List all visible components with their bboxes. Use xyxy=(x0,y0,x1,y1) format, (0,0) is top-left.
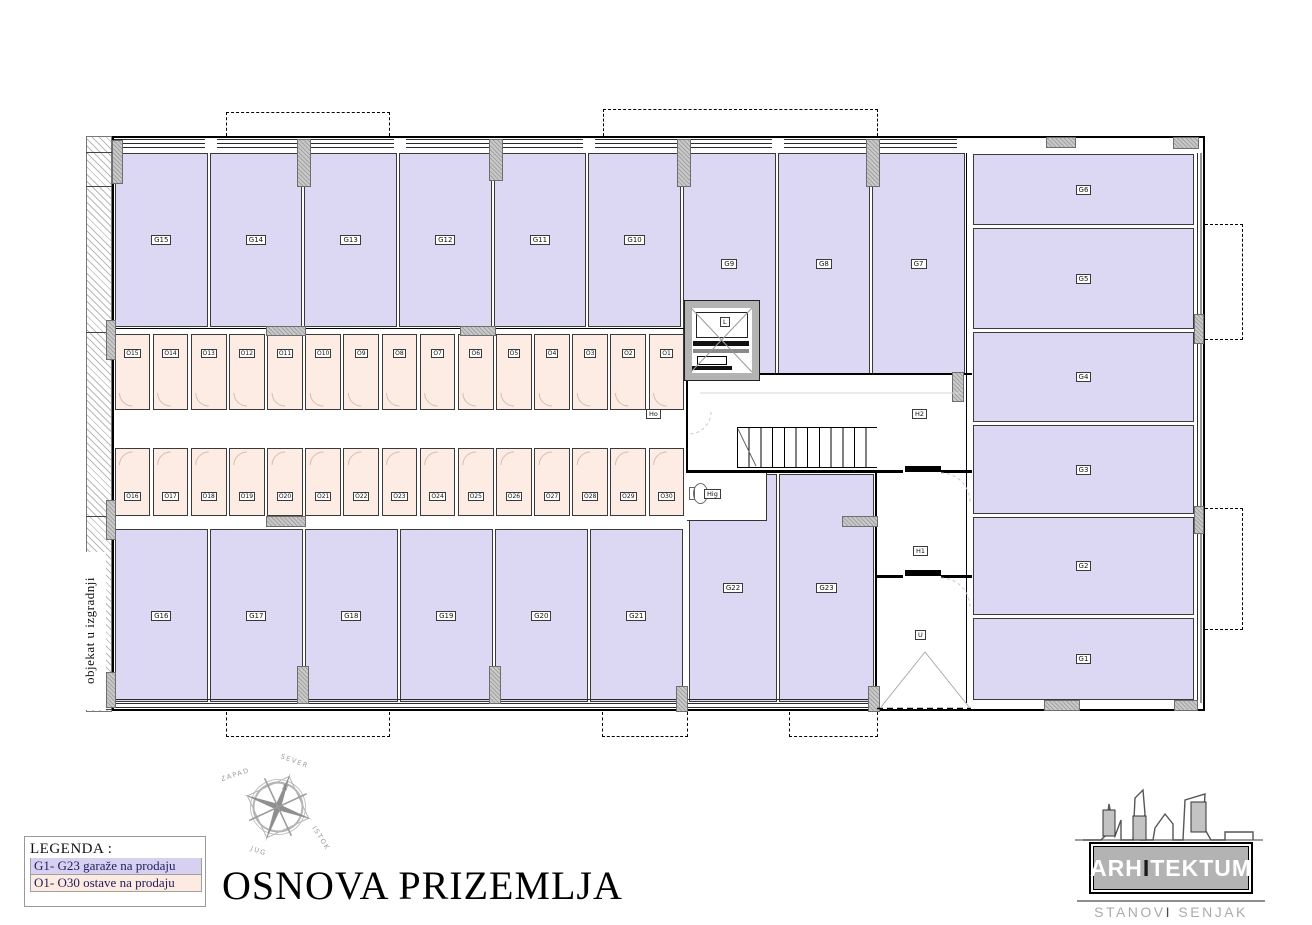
column xyxy=(489,139,503,181)
compass-rose-icon: N SEVER JUG ISTOK ZAPAD xyxy=(222,748,334,860)
column xyxy=(952,372,964,402)
room-G8: G8 xyxy=(778,153,871,374)
side-note: objekat u izgradnji xyxy=(82,552,106,710)
room-O1: O1 xyxy=(649,334,685,410)
wall xyxy=(114,328,686,329)
column xyxy=(460,326,496,336)
room-O19: O19 xyxy=(229,448,265,516)
room-label: G12 xyxy=(435,235,455,245)
legend-item-garages: G1- G23 garaže na prodaju xyxy=(30,858,202,875)
room-O15: O15 xyxy=(115,334,151,410)
compass-west-label: ZAPAD xyxy=(222,766,251,783)
room-label: G8 xyxy=(816,259,832,269)
pilaster-gap xyxy=(583,139,595,151)
room-O18: O18 xyxy=(191,448,227,516)
garage-doors-right xyxy=(1197,153,1204,703)
room-label: G23 xyxy=(816,583,836,593)
room-O20: O20 xyxy=(267,448,303,516)
room-label: O28 xyxy=(582,492,598,501)
room-label: G20 xyxy=(531,611,551,621)
reference-tick xyxy=(86,186,112,187)
room-label: O23 xyxy=(391,492,407,501)
room-label: G3 xyxy=(1076,465,1092,475)
room-O2: O2 xyxy=(610,334,646,410)
column xyxy=(297,666,309,704)
logo-name-box: ARHITEKTUM xyxy=(1089,842,1253,894)
room-G11: G11 xyxy=(494,153,587,327)
column xyxy=(1046,137,1076,148)
room-label: G19 xyxy=(436,611,456,621)
column xyxy=(106,320,116,360)
room-label-Ho: Ho xyxy=(646,409,661,419)
room-label: O14 xyxy=(162,349,178,358)
column xyxy=(1194,506,1204,534)
room-G23: G23 xyxy=(779,474,874,702)
wall xyxy=(686,377,688,471)
room-G5: G5 xyxy=(973,228,1194,329)
wall xyxy=(876,575,903,578)
column xyxy=(677,139,691,187)
projection-outline xyxy=(226,712,390,737)
room-label: O22 xyxy=(353,492,369,501)
room-O11: O11 xyxy=(267,334,303,410)
room-label: O8 xyxy=(393,349,406,358)
room-label: O10 xyxy=(315,349,331,358)
column xyxy=(489,666,501,704)
room-label: G10 xyxy=(624,235,644,245)
floor-plan-sheet: G15G14G13G12G11G10G9G8G7G6G5G4G3G2G1G16G… xyxy=(0,0,1312,925)
room-G16: G16 xyxy=(115,529,208,702)
room-O16: O16 xyxy=(115,448,151,516)
room-G6: G6 xyxy=(973,154,1194,225)
room-label: G13 xyxy=(340,235,360,245)
projection-outline xyxy=(602,712,688,737)
drawing-title: OSNOVA PRIZEMLJA xyxy=(222,862,623,909)
room-O28: O28 xyxy=(572,448,608,516)
room-label: G6 xyxy=(1076,185,1092,195)
room-label: O13 xyxy=(201,349,217,358)
room-label-Hig: Hig xyxy=(704,489,721,499)
column xyxy=(1173,137,1199,149)
column xyxy=(297,139,311,187)
architect-logo: ARHITEKTUM STANOVI SENJAK xyxy=(1075,780,1267,922)
room-G10: G10 xyxy=(588,153,681,327)
room-label-U: U xyxy=(915,630,926,640)
room-label: G21 xyxy=(626,611,646,621)
legend: LEGENDA : G1- G23 garaže na prodaju O1- … xyxy=(24,836,206,907)
column xyxy=(1044,700,1080,711)
room-O4: O4 xyxy=(534,334,570,410)
wall xyxy=(966,153,967,703)
reference-tick xyxy=(86,152,112,153)
room-label: O27 xyxy=(544,492,560,501)
projection-outline xyxy=(603,109,878,136)
pilaster-gap xyxy=(772,139,784,151)
wc-room xyxy=(687,473,767,521)
wall xyxy=(941,470,972,473)
room-label: G4 xyxy=(1076,372,1092,382)
column xyxy=(676,686,688,712)
column xyxy=(1194,314,1204,344)
room-O23: O23 xyxy=(382,448,418,516)
room-label: G15 xyxy=(151,235,171,245)
room-G17: G17 xyxy=(210,529,303,702)
room-O13: O13 xyxy=(191,334,227,410)
room-G18: G18 xyxy=(305,529,398,702)
compass-north-label: SEVER xyxy=(280,752,310,770)
room-G14: G14 xyxy=(210,153,303,327)
room-O7: O7 xyxy=(420,334,456,410)
staircase xyxy=(737,427,877,468)
room-label: G14 xyxy=(246,235,266,245)
column xyxy=(868,686,880,712)
room-label: O30 xyxy=(658,492,674,501)
room-label: O19 xyxy=(239,492,255,501)
room-label: G11 xyxy=(530,235,550,245)
column xyxy=(112,140,123,184)
room-label: O5 xyxy=(508,349,521,358)
room-label: G18 xyxy=(341,611,361,621)
wall xyxy=(875,473,877,710)
room-label-H1: H1 xyxy=(913,546,928,556)
projection-outline xyxy=(1205,224,1243,340)
pilaster-gap xyxy=(394,139,406,151)
room-O12: O12 xyxy=(229,334,265,410)
room-label: G16 xyxy=(151,611,171,621)
room-G4: G4 xyxy=(973,332,1194,422)
room-label: O9 xyxy=(355,349,368,358)
room-label: O2 xyxy=(622,349,635,358)
door-leaf xyxy=(905,570,941,576)
room-label-H2: H2 xyxy=(912,409,927,419)
compass-east-label: ISTOK xyxy=(310,825,331,852)
room-label: G5 xyxy=(1076,274,1092,284)
room-O5: O5 xyxy=(496,334,532,410)
room-O10: O10 xyxy=(305,334,341,410)
logo-subtitle: STANOVI SENJAK xyxy=(1089,904,1253,920)
room-label: O20 xyxy=(277,492,293,501)
pilaster-gap xyxy=(957,139,969,151)
room-G1: G1 xyxy=(973,618,1194,700)
room-O29: O29 xyxy=(610,448,646,516)
room-label: G1 xyxy=(1076,654,1092,664)
room-O25: O25 xyxy=(458,448,494,516)
compass-south-label: JUG xyxy=(249,844,268,858)
room-label: O7 xyxy=(431,349,444,358)
room-O22: O22 xyxy=(343,448,379,516)
room-O14: O14 xyxy=(153,334,189,410)
room-label: O29 xyxy=(620,492,636,501)
room-O30: O30 xyxy=(649,448,685,516)
room-label-L: L xyxy=(720,317,730,327)
wall xyxy=(941,575,972,578)
room-O3: O3 xyxy=(572,334,608,410)
room-label: O15 xyxy=(124,349,140,358)
column xyxy=(866,139,880,187)
column xyxy=(266,326,306,336)
room-label: O24 xyxy=(429,492,445,501)
room-O8: O8 xyxy=(382,334,418,410)
room-O6: O6 xyxy=(458,334,494,410)
room-label: G22 xyxy=(723,583,743,593)
room-label: O21 xyxy=(315,492,331,501)
room-O24: O24 xyxy=(420,448,456,516)
room-label: O17 xyxy=(162,492,178,501)
room-label: O4 xyxy=(546,349,559,358)
room-label: O16 xyxy=(124,492,140,501)
column xyxy=(106,500,116,540)
room-G2: G2 xyxy=(973,517,1194,615)
room-O27: O27 xyxy=(534,448,570,516)
legend-heading: LEGENDA : xyxy=(30,841,200,858)
projection-outline xyxy=(226,112,390,136)
wall xyxy=(758,373,972,375)
legend-item-storage: O1- O30 ostave na prodaju xyxy=(30,875,202,892)
room-O17: O17 xyxy=(153,448,189,516)
room-label: G2 xyxy=(1076,561,1092,571)
room-O26: O26 xyxy=(496,448,532,516)
column xyxy=(1174,700,1198,711)
logo-skyline-icon xyxy=(1075,780,1267,842)
column xyxy=(106,672,116,708)
room-O21: O21 xyxy=(305,448,341,516)
door-leaf xyxy=(905,466,941,472)
room-label: O11 xyxy=(277,349,293,358)
room-label: G9 xyxy=(721,259,737,269)
elevator xyxy=(685,301,759,380)
room-label: O18 xyxy=(201,492,217,501)
logo-name: ARHITEKTUM xyxy=(1090,855,1252,882)
room-G3: G3 xyxy=(973,425,1194,514)
room-G7: G7 xyxy=(872,153,965,374)
projection-outline xyxy=(789,712,878,737)
pilaster-gap xyxy=(205,139,217,151)
garage-doors-top xyxy=(114,139,965,151)
column xyxy=(842,516,878,527)
projection-outline xyxy=(1205,508,1243,630)
room-O9: O9 xyxy=(343,334,379,410)
room-label: O6 xyxy=(469,349,482,358)
logo-rule xyxy=(1077,900,1265,902)
room-G20: G20 xyxy=(495,529,588,702)
wall xyxy=(686,470,903,473)
room-G12: G12 xyxy=(399,153,492,327)
room-G13: G13 xyxy=(304,153,397,327)
room-label: O1 xyxy=(660,349,673,358)
room-label: O25 xyxy=(468,492,484,501)
room-label: O3 xyxy=(584,349,597,358)
room-G15: G15 xyxy=(115,153,208,327)
room-label: G17 xyxy=(246,611,266,621)
room-G19: G19 xyxy=(400,529,493,702)
room-label: G7 xyxy=(911,259,927,269)
room-label: O26 xyxy=(506,492,522,501)
room-G21: G21 xyxy=(590,529,683,702)
column xyxy=(266,516,306,527)
room-label: O12 xyxy=(239,349,255,358)
